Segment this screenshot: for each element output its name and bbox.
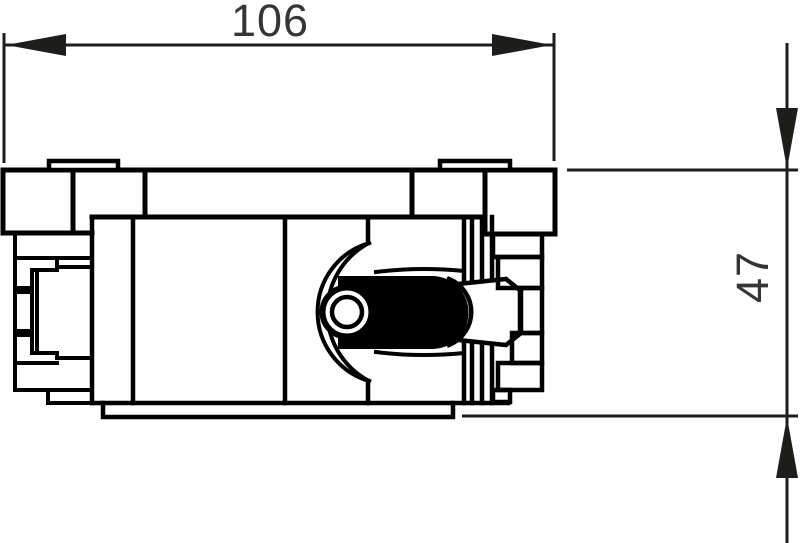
technical-drawing: 106 47 [0, 0, 800, 543]
part-view [3, 161, 555, 417]
pin-end-circle [323, 288, 372, 337]
dim-arrow-up-icon [776, 417, 798, 478]
dimension-width-label: 106 [231, 0, 309, 46]
dimension-height-label: 47 [727, 251, 778, 303]
dimension-width [4, 33, 554, 163]
technical-drawing-canvas: 106 47 [0, 0, 800, 543]
dim-arrow-down-icon [776, 108, 798, 169]
dim-arrow-right-icon [492, 34, 552, 56]
left-clip-profile [15, 233, 92, 403]
dim-arrow-left-icon [6, 34, 66, 56]
